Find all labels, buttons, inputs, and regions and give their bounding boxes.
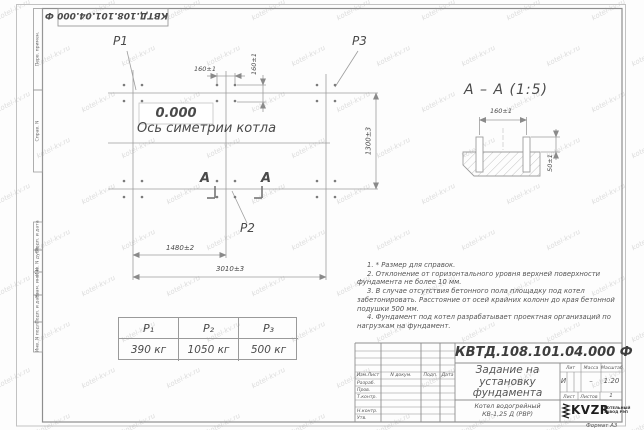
product-name: Котел водогрейный КВ-1,25 Д (РВР)	[455, 403, 560, 418]
tb-col-n-dokum: N докум.	[381, 372, 421, 379]
note-1: 1. * Размер для справок.	[357, 261, 631, 270]
notes-block: 1. * Размер для справок. 2. Отклонение о…	[357, 261, 631, 331]
tb-row-utv: Утв.	[357, 415, 367, 422]
load-table: P₁ P₂ P₃ 390 кг 1050 кг 500 кг	[118, 317, 297, 360]
format-label: Формат А3	[586, 423, 617, 430]
tb-masshtab-label: Масштаб	[601, 365, 622, 372]
tb-listov-label: Листов	[578, 394, 600, 401]
symmetry-axis-label: Ось симетрии котла	[137, 122, 276, 135]
dim-1480: 1480±2	[166, 245, 194, 252]
tb-list-label: Лист	[560, 394, 578, 401]
tb-row-tkontr: Т.контр.	[357, 394, 377, 401]
kvzr-logo-sub-line-2: ЗАВОД РЭП	[604, 410, 630, 414]
kvzr-logo-subtitle: КОТЕЛЬНЫЙ ЗАВОД РЭП	[604, 406, 630, 415]
anchor-bolt-left	[476, 137, 483, 172]
tb-lit-label: Лит	[560, 365, 581, 372]
product-name-line-2: КВ-1,25 Д (РВР)	[455, 411, 560, 419]
tb-masshtab-value: 1:20	[601, 378, 622, 385]
tb-row-razrab: Разраб.	[357, 380, 375, 387]
margin-label-sprav-n: Справ. N	[36, 120, 41, 141]
anchor-bolt-right	[523, 137, 530, 172]
load-table-value-p2: 1050 кг	[179, 339, 239, 361]
tb-row-nkontr: Н.контр.	[357, 408, 378, 415]
drawing-sheet: kotel-kv.rukotel-kv.rukotel-kv.rukotel-k…	[0, 0, 644, 430]
margin-label-podp-data-2: Подп. и дата	[36, 292, 41, 323]
section-dim-50: 50±1	[547, 154, 554, 172]
note-4: 4. Фундамент под котел разрабатывает про…	[357, 313, 631, 330]
dim-3010: 3010±3	[216, 266, 244, 273]
section-letter-right: А	[261, 172, 271, 185]
load-table-value-p1: 390 кг	[119, 339, 179, 361]
tb-massa-value: –	[581, 378, 601, 385]
load-point-p2-label: P2	[240, 222, 255, 234]
tb-lit-value: И	[560, 378, 567, 385]
tb-col-izm-list: Изм.Лист	[355, 372, 381, 379]
note-3: 3. В случае отсутствия бетонного пола пл…	[357, 287, 631, 313]
spring-icon	[563, 404, 569, 418]
tb-col-data: Дата	[440, 372, 455, 379]
dim-160-vertical: 160±1	[251, 53, 258, 75]
load-table-value-p3: 500 кг	[239, 339, 298, 361]
drawing-title-line-3: фундамента	[455, 388, 560, 400]
section-title: А – А (1:5)	[464, 83, 548, 97]
tb-listov-value: 1	[600, 393, 622, 400]
load-point-p1-label: P1	[113, 35, 128, 47]
load-point-p3-label: P3	[352, 35, 367, 47]
tb-row-prov: Пров.	[357, 387, 370, 394]
drawing-title: Задание на установку фундамента	[455, 365, 560, 400]
plan-view-lines	[108, 51, 378, 280]
doc-number: КВТД.108.101.04.000 Ф	[455, 346, 622, 359]
top-stamp-text: КВТД.108.101.04.000 Ф	[58, 10, 168, 19]
anchor-bolt-dots	[123, 84, 337, 199]
load-table-header-p1: P₁	[119, 318, 179, 339]
margin-label-inv-podl: Инв. N подл.	[36, 322, 41, 352]
dim-160-horizontal: 160±1	[194, 66, 216, 73]
section-letter-left: А	[200, 172, 210, 185]
dim-1300: 1300±3	[366, 127, 373, 155]
tb-massa-label: Масса	[581, 365, 601, 372]
drawing-title-line-1: Задание на	[455, 365, 560, 377]
product-name-line-1: Котел водогрейный	[455, 403, 560, 411]
load-table-header-p3: P₃	[239, 318, 298, 339]
margin-label-perv-primen: Перв. примен.	[36, 32, 41, 67]
note-2: 2. Отклонение от горизонтального уровня …	[357, 270, 631, 287]
tb-col-podp: Подп.	[421, 372, 440, 379]
load-table-header-p2: P₂	[179, 318, 239, 339]
section-dim-160: 160±1	[490, 108, 512, 115]
